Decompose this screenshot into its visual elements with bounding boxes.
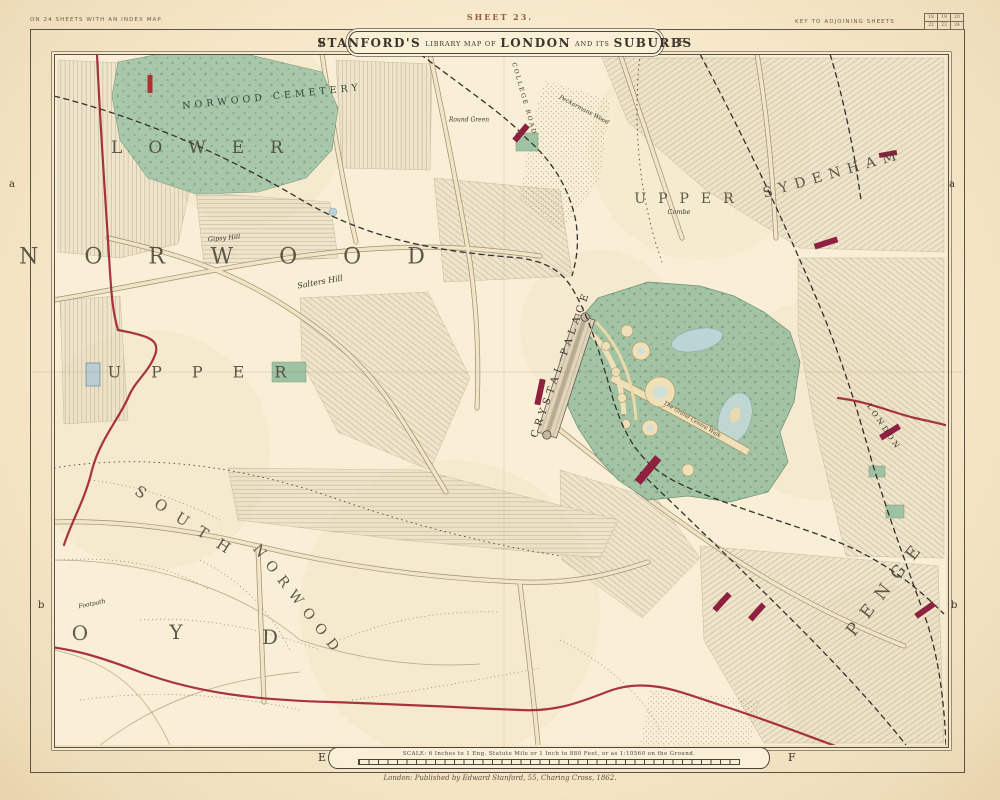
title-publisher: STANFORD'S	[317, 36, 421, 50]
publisher-imprint: London: Published by Edward Stanford, 55…	[0, 774, 1000, 782]
title-and-its: AND ITS	[575, 40, 610, 48]
label-croydon-o: O	[72, 621, 88, 645]
grid-col-f-top: F	[678, 36, 686, 49]
grid-row-b-right: b	[951, 600, 957, 611]
grid-row-a-right: a	[949, 179, 955, 190]
grid-col-e-top: E	[318, 36, 326, 49]
label-lower-norwood: LOWER	[111, 138, 309, 158]
label-round-green: Round Green	[449, 117, 489, 124]
label-upper-sydenham-upper: UPPER	[634, 191, 745, 207]
fold-crease-vertical	[503, 30, 505, 770]
label-croydon-d: D	[262, 625, 278, 649]
key-cell: 23	[938, 22, 951, 30]
scale-ruler	[358, 759, 740, 765]
adjoining-sheets-grid: 18 19 20 22 23 24	[924, 13, 964, 30]
key-cell: 20	[951, 14, 964, 22]
title-library-map-of: LIBRARY MAP OF	[425, 40, 496, 48]
label-croydon-y: Y	[169, 620, 182, 644]
label-combe: Combe	[667, 208, 690, 216]
map-sheet: ON 24 SHEETS WITH AN INDEX MAP. SHEET 23…	[0, 0, 1000, 800]
title-cartouche: STANFORD'S LIBRARY MAP OF LONDON AND ITS…	[348, 31, 662, 54]
key-cell: 22	[925, 22, 938, 30]
inner-neatline	[54, 54, 949, 748]
label-upper-norwood: UPPER	[108, 363, 317, 382]
key-cell: 18	[925, 14, 938, 22]
scale-cartouche: SCALE: 6 Inches to 1 Eng. Statute Mile o…	[328, 747, 770, 769]
key-note: KEY TO ADJOINING SHEETS	[795, 19, 895, 25]
label-norwood: NORWOOD	[19, 245, 471, 270]
title-london: LONDON	[500, 36, 571, 50]
key-cell: 19	[938, 14, 951, 22]
grid-row-b-left: b	[38, 600, 44, 611]
grid-col-f-bottom: F	[788, 751, 796, 764]
grid-row-a-left: a	[9, 179, 15, 190]
grid-col-e-bottom: E	[318, 751, 326, 764]
key-cell: 24	[951, 22, 964, 30]
scale-text: SCALE: 6 Inches to 1 Eng. Statute Mile o…	[403, 751, 696, 757]
